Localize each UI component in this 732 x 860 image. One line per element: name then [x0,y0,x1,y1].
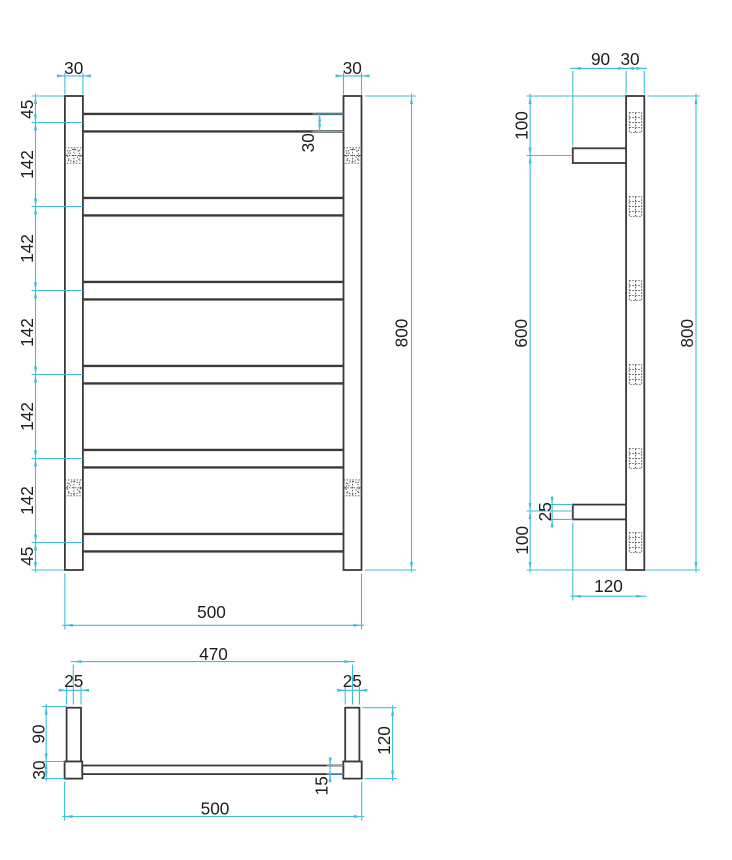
svg-text:600: 600 [511,319,531,348]
svg-text:30: 30 [29,760,49,779]
svg-text:142: 142 [17,150,37,179]
svg-text:30: 30 [343,58,362,78]
svg-text:30: 30 [620,49,639,69]
svg-text:45: 45 [17,100,37,119]
svg-text:142: 142 [17,234,37,263]
svg-text:800: 800 [392,319,412,348]
svg-text:500: 500 [197,602,226,622]
svg-text:100: 100 [511,111,531,140]
svg-text:30: 30 [64,58,83,78]
svg-text:45: 45 [17,547,37,566]
svg-text:30: 30 [298,133,318,152]
svg-text:25: 25 [64,671,83,691]
svg-text:90: 90 [28,724,48,743]
svg-text:25: 25 [535,502,555,521]
svg-text:142: 142 [17,318,37,347]
svg-text:100: 100 [512,526,532,555]
svg-text:470: 470 [199,644,228,664]
svg-text:120: 120 [374,726,394,755]
svg-text:25: 25 [343,671,362,691]
svg-text:142: 142 [17,486,37,515]
svg-text:120: 120 [594,576,623,596]
svg-text:142: 142 [17,402,37,431]
svg-text:800: 800 [677,319,697,348]
svg-text:90: 90 [591,49,610,69]
svg-text:15: 15 [311,776,331,795]
svg-text:500: 500 [201,798,230,818]
